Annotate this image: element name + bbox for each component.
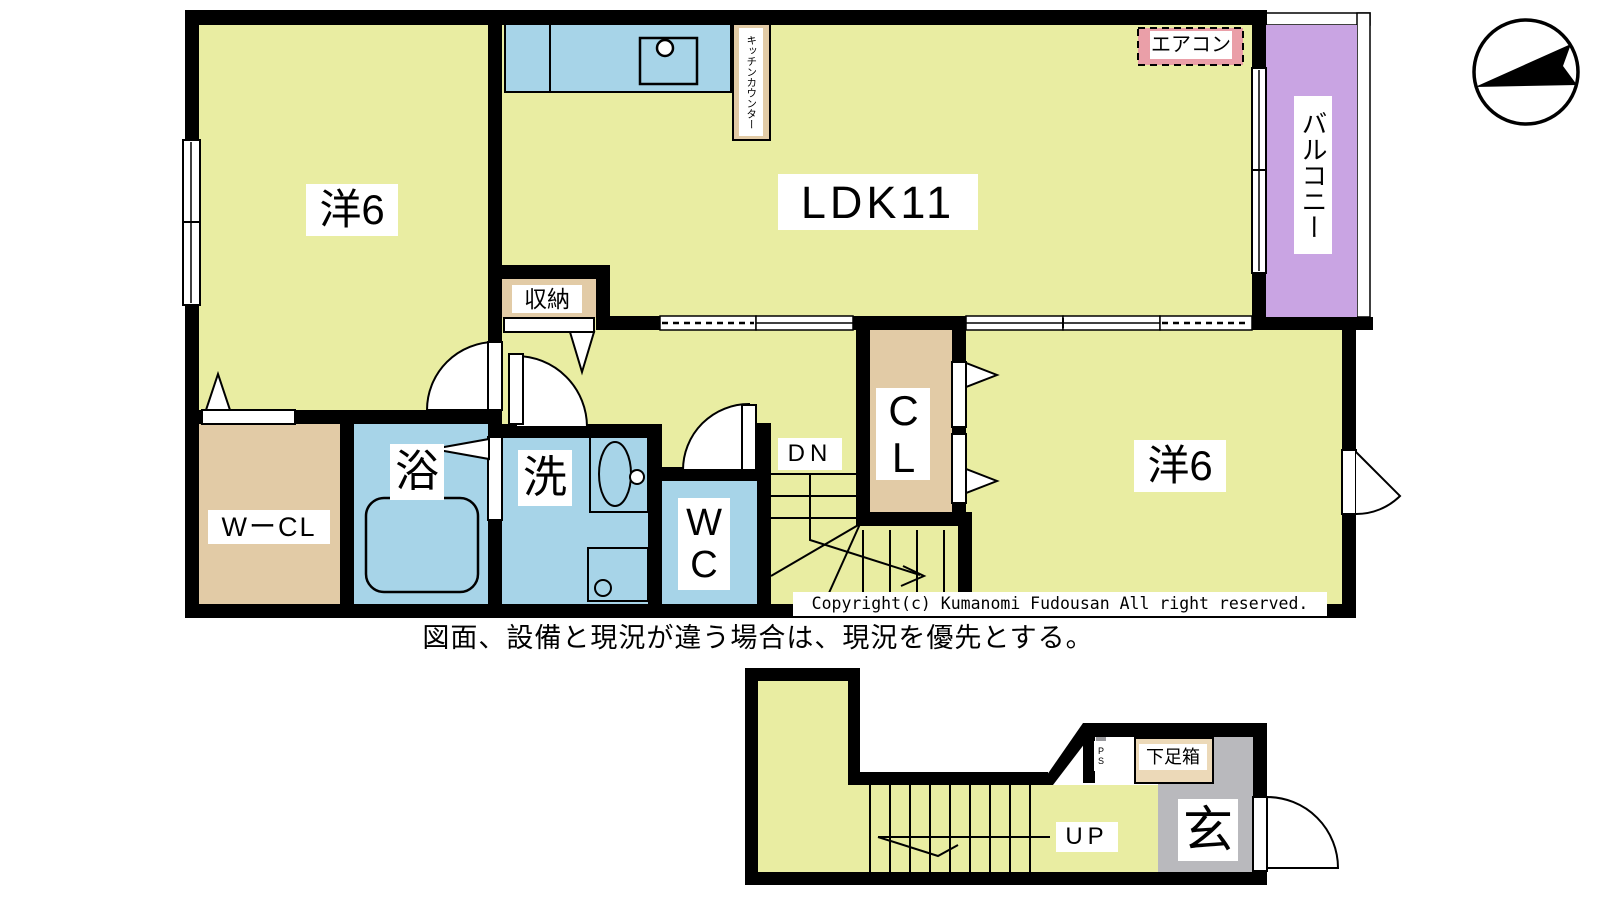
storage-opening — [504, 318, 594, 332]
balcony-rim-top — [1263, 13, 1370, 25]
label-stairs-down: DN — [778, 438, 842, 470]
door-leaf-wc — [742, 405, 756, 470]
door-leaf-western-right — [1342, 450, 1356, 514]
floor2-plan — [183, 10, 1400, 618]
room-label-storage: 収納 — [512, 285, 582, 313]
balcony-rim-right — [1357, 13, 1370, 317]
room-label-balcony: バルコニー — [1294, 96, 1332, 254]
door-leaf-western-left — [488, 342, 502, 410]
room-label-wc: WC — [678, 498, 730, 590]
floor-plan-page: 洋6 LDK11 洋6 収納 浴 洗 WC CL DN WーCL バルコニー キ… — [0, 0, 1600, 900]
room-label-bath: 浴 — [390, 444, 444, 500]
disclaimer-text: 図面、設備と現況が違う場合は、現況を優先とする。 — [400, 620, 1116, 656]
walkin-closet-opening — [202, 410, 295, 424]
label-stairs-up: UP — [1056, 822, 1118, 852]
room-label-western-left: 洋6 — [306, 184, 398, 236]
label-kitchen-counter: キッチンカウンター — [739, 28, 763, 136]
compass-icon — [1474, 20, 1578, 124]
door-leaf-wash — [509, 354, 523, 424]
cl-fold-door-bottom — [952, 434, 966, 503]
door-swing-entrance — [1267, 797, 1338, 868]
floor1-plan — [745, 668, 1338, 885]
room-label-walkin-closet: WーCL — [208, 510, 330, 544]
faucet-icon — [657, 40, 673, 56]
basin-knob-icon — [630, 470, 644, 484]
label-pipe-shaft: PS — [1094, 741, 1107, 771]
room-label-western-right: 洋6 — [1134, 440, 1226, 492]
room-label-cl: CL — [876, 388, 930, 480]
room-label-wash: 洗 — [518, 450, 572, 506]
room-label-ldk: LDK11 — [778, 174, 978, 230]
label-aircon: エアコン — [1150, 31, 1232, 59]
bath-fold-door — [488, 437, 502, 520]
label-shoe-box: 下足箱 — [1139, 744, 1207, 770]
door-leaf-entrance — [1253, 797, 1267, 871]
room-label-entrance: 玄 — [1178, 799, 1238, 861]
copyright-text: Copyright(c) Kumanomi Fudousan All right… — [793, 592, 1327, 616]
door-swing-western-right — [1356, 452, 1400, 514]
cl-fold-door-top — [952, 362, 966, 427]
